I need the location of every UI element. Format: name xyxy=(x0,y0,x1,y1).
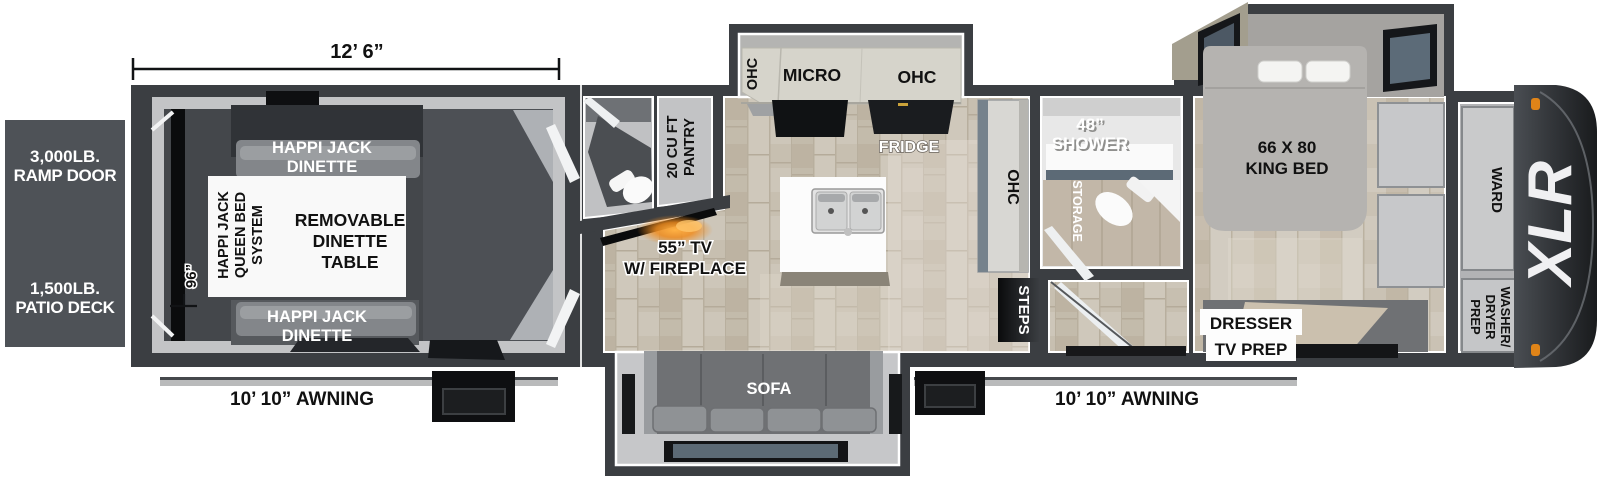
svg-text:HAPPI JACK: HAPPI JACK xyxy=(216,191,232,279)
svg-text:FRIDGE: FRIDGE xyxy=(879,139,940,156)
svg-text:XLR: XLR xyxy=(1516,161,1585,288)
svg-text:96”: 96” xyxy=(183,264,200,288)
svg-text:PATIO DECK: PATIO DECK xyxy=(15,298,115,317)
svg-text:STEPS: STEPS xyxy=(1015,285,1032,334)
svg-text:MICRO: MICRO xyxy=(783,65,841,85)
svg-text:QUEEN BED: QUEEN BED xyxy=(233,192,249,278)
svg-text:STORAGE: STORAGE xyxy=(1070,180,1084,242)
svg-text:PANTRY: PANTRY xyxy=(682,118,698,176)
svg-text:OHC: OHC xyxy=(1004,169,1021,205)
svg-text:DRYER: DRYER xyxy=(1483,294,1498,340)
svg-text:1,500LB.: 1,500LB. xyxy=(30,279,100,298)
svg-text:SYSTEM: SYSTEM xyxy=(250,205,266,265)
svg-text:DINETTE: DINETTE xyxy=(282,327,353,345)
svg-text:TABLE: TABLE xyxy=(321,252,378,272)
svg-text:REMOVABLE: REMOVABLE xyxy=(295,210,406,230)
svg-text:WARD: WARD xyxy=(1488,167,1505,213)
svg-text:WASHER/: WASHER/ xyxy=(1498,287,1513,348)
svg-text:55” TV: 55” TV xyxy=(658,238,713,257)
svg-text:HAPPI JACK: HAPPI JACK xyxy=(272,139,372,157)
svg-text:RAMP DOOR: RAMP DOOR xyxy=(14,166,117,185)
svg-text:SOFA: SOFA xyxy=(747,380,792,398)
svg-text:10’ 10” AWNING: 10’ 10” AWNING xyxy=(1055,389,1199,410)
svg-text:SHOWER: SHOWER xyxy=(1052,134,1129,153)
svg-text:PREP: PREP xyxy=(1468,299,1483,335)
svg-text:DINETTE: DINETTE xyxy=(287,158,358,176)
svg-text:10’ 10” AWNING: 10’ 10” AWNING xyxy=(230,389,374,410)
svg-text:20 CU FT: 20 CU FT xyxy=(665,115,681,178)
svg-text:TV PREP: TV PREP xyxy=(1215,340,1288,359)
svg-text:HAPPI JACK: HAPPI JACK xyxy=(267,308,367,326)
svg-text:DRESSER: DRESSER xyxy=(1210,314,1292,333)
svg-text:OHC: OHC xyxy=(745,57,761,90)
svg-text:OHC: OHC xyxy=(898,67,937,87)
svg-text:W/ FIREPLACE: W/ FIREPLACE xyxy=(624,259,746,278)
svg-text:48”: 48” xyxy=(1076,115,1103,134)
svg-text:DINETTE: DINETTE xyxy=(313,231,388,251)
svg-text:12’ 6”: 12’ 6” xyxy=(330,41,383,63)
svg-text:3,000LB.: 3,000LB. xyxy=(30,147,100,166)
svg-text:66 X 80: 66 X 80 xyxy=(1258,138,1317,157)
svg-text:KING BED: KING BED xyxy=(1245,159,1328,178)
